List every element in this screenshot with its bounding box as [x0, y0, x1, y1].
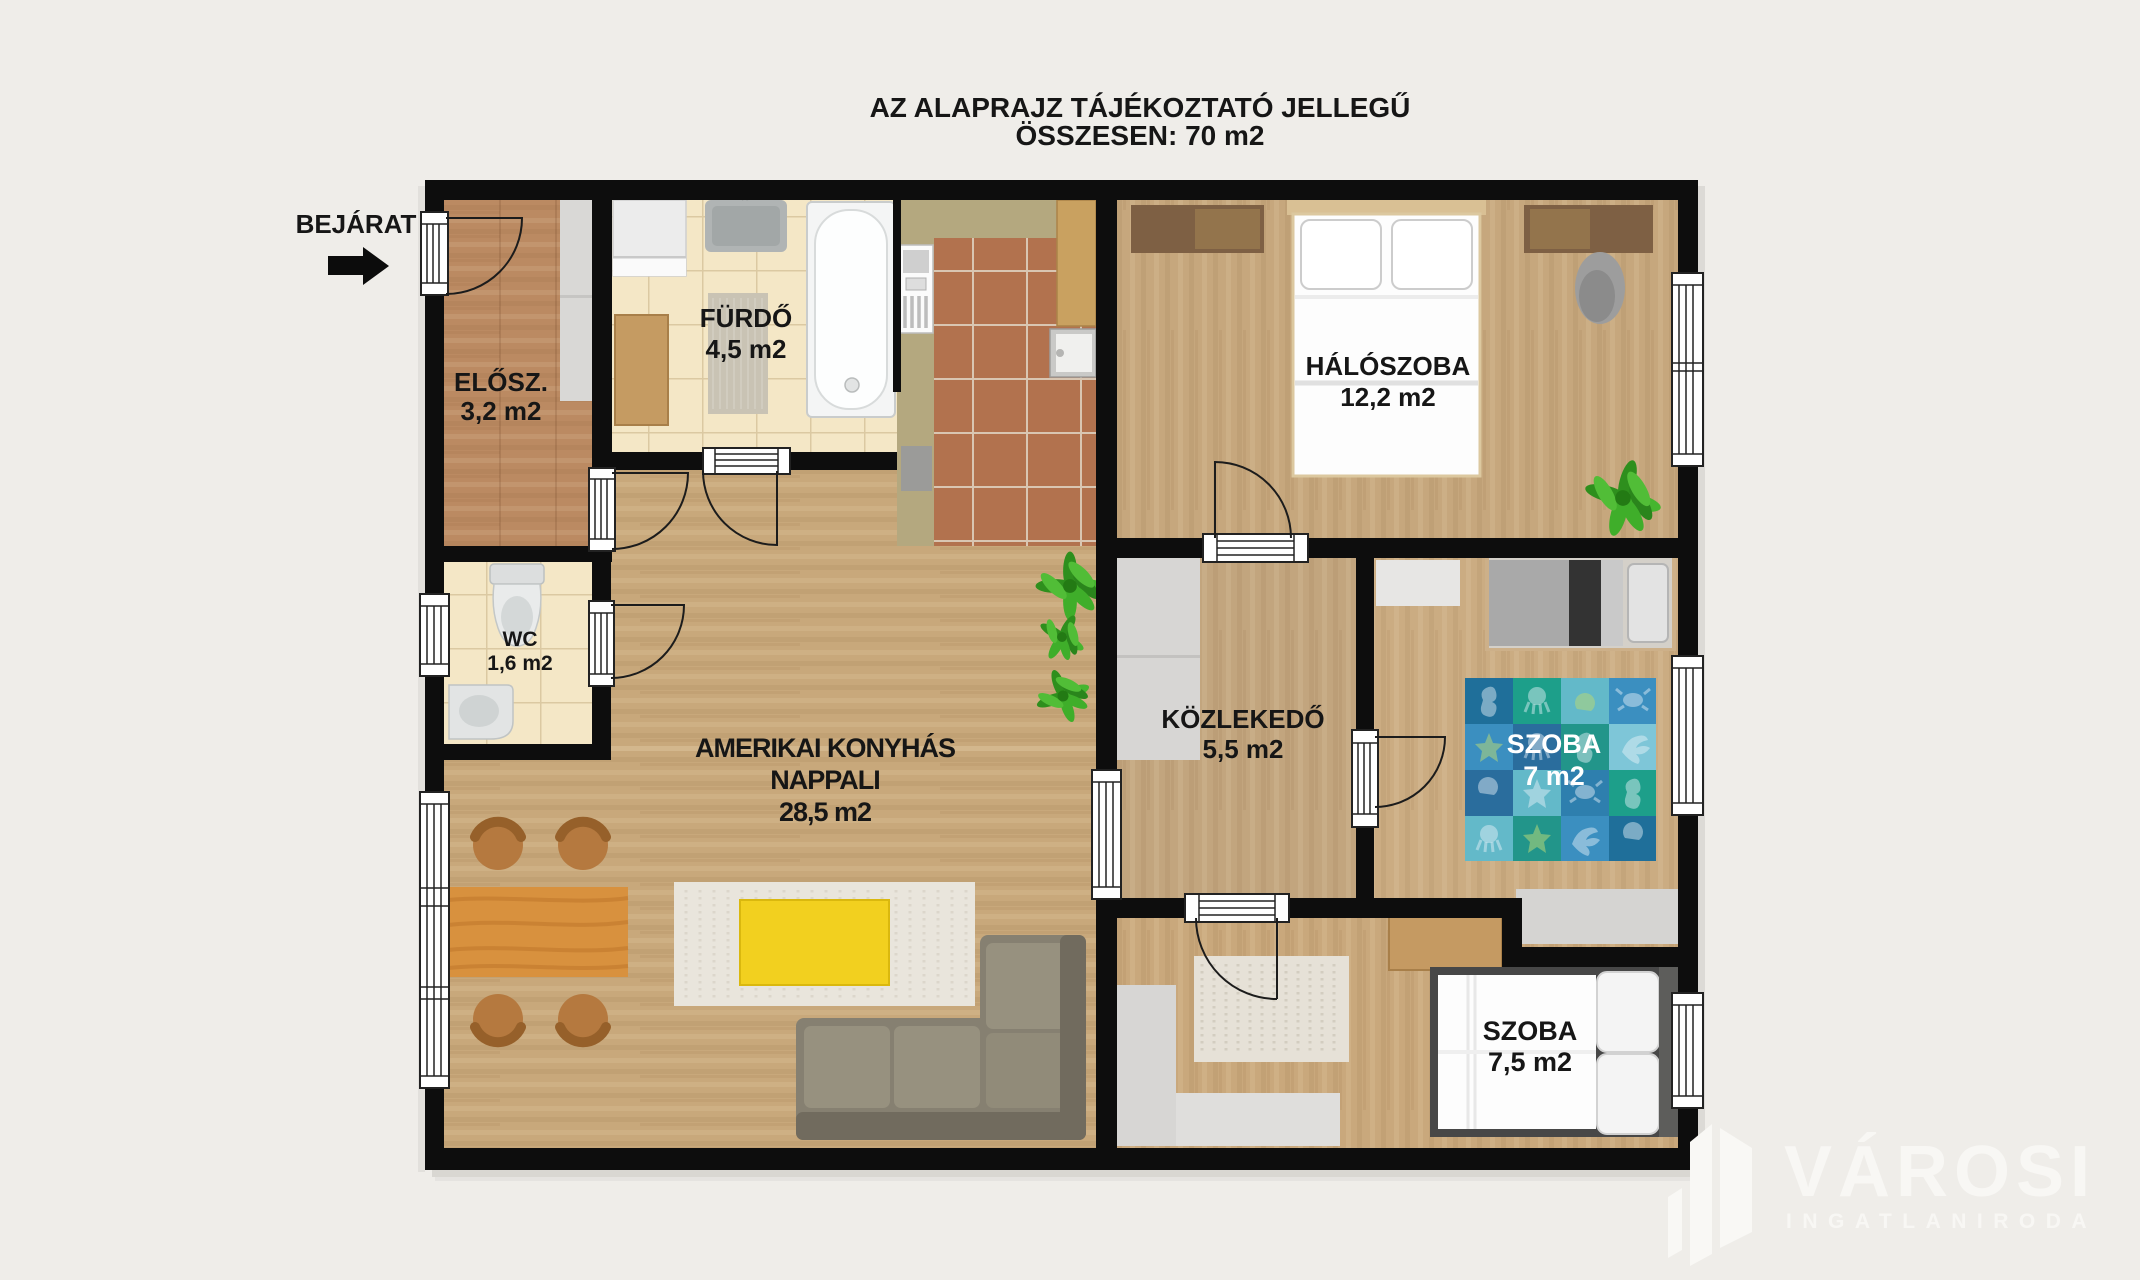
- svg-text:ELŐSZ.: ELŐSZ.: [454, 367, 548, 397]
- svg-text:3,2 m2: 3,2 m2: [461, 396, 542, 426]
- svg-text:12,2 m2: 12,2 m2: [1340, 382, 1435, 412]
- svg-text:NAPPALI: NAPPALI: [770, 765, 880, 795]
- svg-text:KÖZLEKEDŐ: KÖZLEKEDŐ: [1161, 704, 1324, 734]
- svg-text:1,6 m2: 1,6 m2: [487, 652, 552, 675]
- svg-text:ÖSSZESEN: 70 m2: ÖSSZESEN: 70 m2: [1016, 120, 1265, 151]
- svg-text:7 m2: 7 m2: [1523, 761, 1585, 791]
- svg-text:BEJÁRAT: BEJÁRAT: [296, 209, 417, 239]
- svg-text:4,5 m2: 4,5 m2: [706, 334, 787, 364]
- svg-text:AMERIKAI KONYHÁS: AMERIKAI KONYHÁS: [695, 732, 955, 763]
- svg-text:28,5 m2: 28,5 m2: [779, 797, 871, 827]
- svg-text:7,5 m2: 7,5 m2: [1488, 1047, 1572, 1077]
- svg-text:SZOBA: SZOBA: [1483, 1016, 1578, 1046]
- svg-text:AZ ALAPRAJZ TÁJÉKOZTATÓ JELLEG: AZ ALAPRAJZ TÁJÉKOZTATÓ JELLEGŰ: [870, 92, 1411, 123]
- svg-text:HÁLÓSZOBA: HÁLÓSZOBA: [1306, 351, 1471, 381]
- svg-text:VÁROSI: VÁROSI: [1784, 1132, 2096, 1212]
- svg-text:FÜRDŐ: FÜRDŐ: [700, 303, 792, 333]
- svg-text:5,5 m2: 5,5 m2: [1203, 734, 1284, 764]
- svg-text:SZOBA: SZOBA: [1507, 729, 1602, 759]
- svg-text:INGATLANIRODA: INGATLANIRODA: [1786, 1210, 2097, 1233]
- svg-text:WC: WC: [503, 628, 538, 651]
